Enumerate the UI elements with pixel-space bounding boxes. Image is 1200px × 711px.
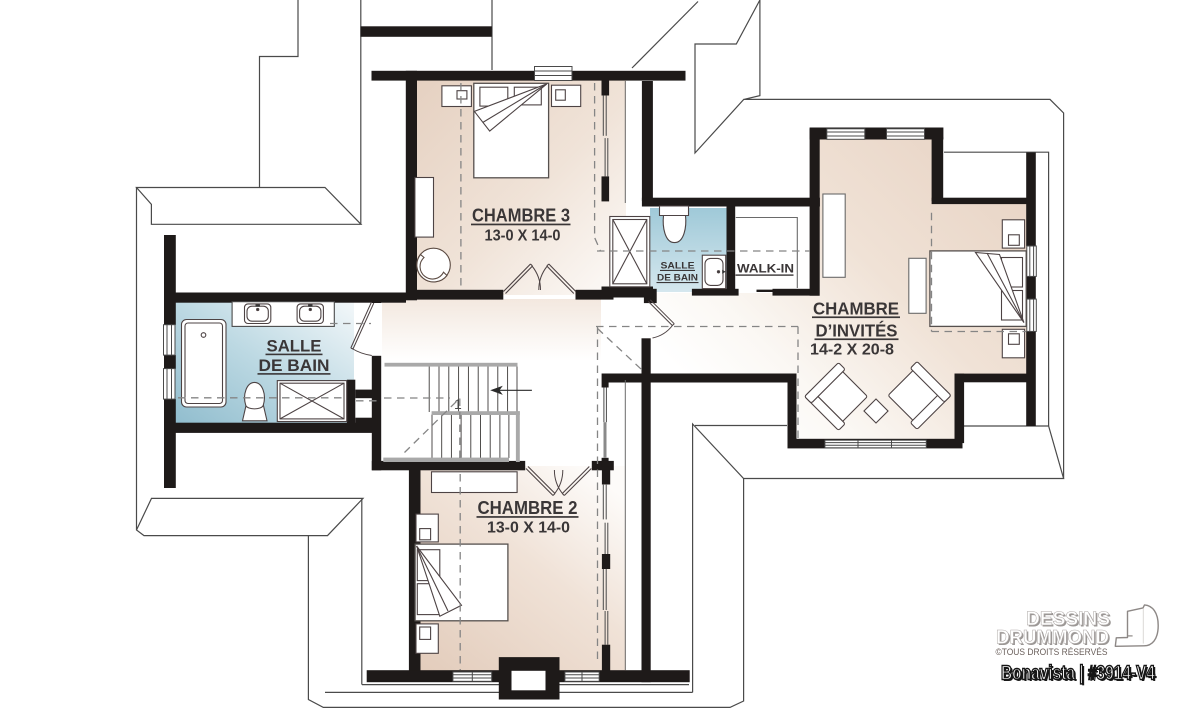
svg-text:13-0 X 14-0: 13-0 X 14-0 bbox=[485, 228, 561, 245]
svg-text:SALLE: SALLE bbox=[661, 260, 695, 271]
svg-text:DE BAIN: DE BAIN bbox=[657, 272, 698, 283]
svg-text:1: 1 bbox=[454, 396, 462, 412]
svg-text:WALK-IN: WALK-IN bbox=[737, 261, 794, 275]
svg-text:14-2 X 20-8: 14-2 X 20-8 bbox=[810, 341, 894, 358]
svg-text:SALLE: SALLE bbox=[267, 338, 322, 356]
svg-text:CHAMBRE 2: CHAMBRE 2 bbox=[478, 498, 578, 518]
svg-text:CHAMBRE: CHAMBRE bbox=[813, 298, 899, 318]
svg-text:DRUMMOND: DRUMMOND bbox=[996, 628, 1109, 649]
svg-text:D’INVITÉS: D’INVITÉS bbox=[816, 319, 898, 340]
svg-text:13-0 X 14-0: 13-0 X 14-0 bbox=[487, 520, 570, 537]
svg-text:Bonavista | #3914-V4: Bonavista | #3914-V4 bbox=[1001, 663, 1156, 685]
svg-text:CHAMBRE 3: CHAMBRE 3 bbox=[472, 206, 570, 226]
svg-text:DE BAIN: DE BAIN bbox=[259, 357, 330, 375]
svg-text:©TOUS DROITS RÉSERVÉS: ©TOUS DROITS RÉSERVÉS bbox=[996, 647, 1108, 657]
